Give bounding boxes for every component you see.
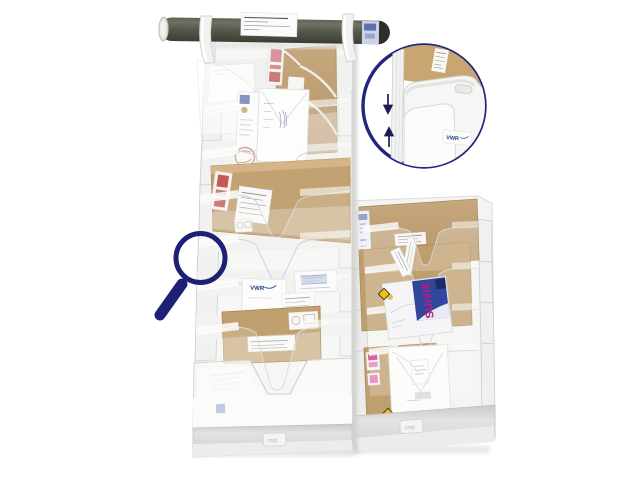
svg-text:cep: cep <box>405 425 416 432</box>
svg-text:cep: cep <box>268 438 278 444</box>
svg-text:VWR: VWR <box>250 286 265 292</box>
